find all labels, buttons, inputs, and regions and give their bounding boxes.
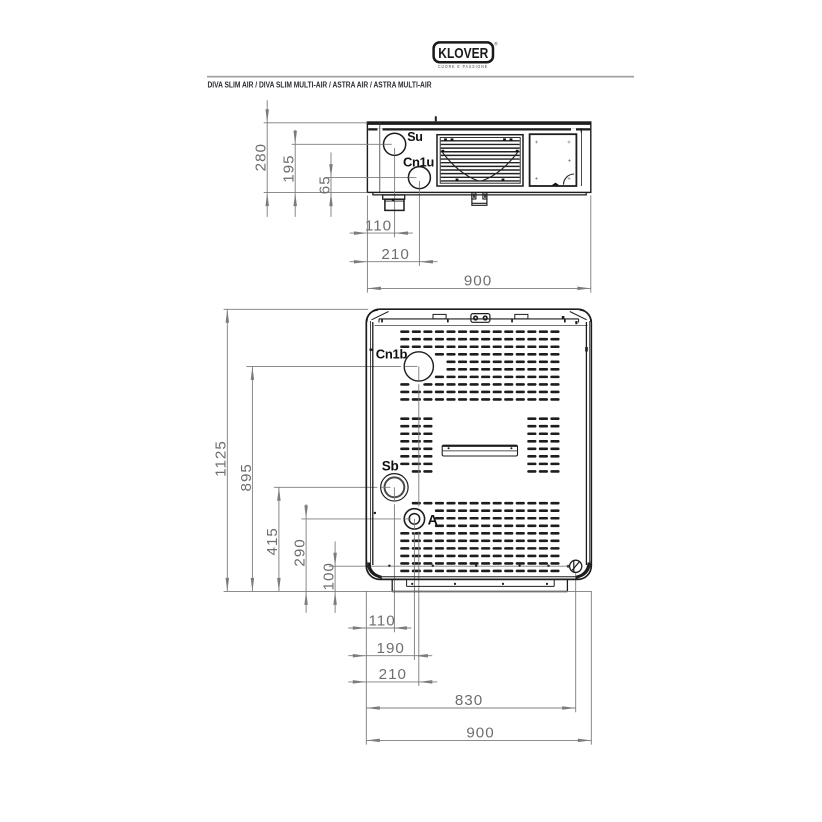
svg-text:Cn1b: Cn1b [376, 346, 408, 361]
svg-text:1125: 1125 [213, 440, 230, 477]
svg-text:190: 190 [377, 640, 405, 657]
svg-text:900: 900 [464, 273, 492, 290]
svg-text:290: 290 [291, 538, 308, 566]
svg-text:110: 110 [365, 217, 392, 234]
svg-text:Cn1u: Cn1u [403, 155, 434, 170]
svg-text:A: A [428, 511, 438, 527]
svg-text:195: 195 [281, 154, 298, 182]
svg-text:DIVA SLIM AIR / DIVA SLIM MUL: DIVA SLIM AIR / DIVA SLIM MULTI-AIR / AS… [208, 80, 433, 90]
svg-text:900: 900 [466, 725, 494, 742]
svg-text:KLOVER: KLOVER [438, 45, 488, 62]
svg-text:895: 895 [238, 463, 255, 491]
svg-text:830: 830 [455, 692, 483, 709]
svg-text:100: 100 [320, 562, 337, 590]
svg-text:Su: Su [407, 130, 422, 144]
svg-text:110: 110 [368, 612, 395, 629]
svg-text:210: 210 [381, 246, 409, 263]
svg-text:210: 210 [379, 666, 407, 683]
svg-text:65: 65 [316, 175, 333, 194]
svg-text:Sb: Sb [382, 458, 399, 473]
svg-text:CUORE E PASSIONE: CUORE E PASSIONE [438, 64, 488, 69]
svg-text:280: 280 [253, 143, 270, 171]
svg-text:415: 415 [264, 527, 281, 555]
